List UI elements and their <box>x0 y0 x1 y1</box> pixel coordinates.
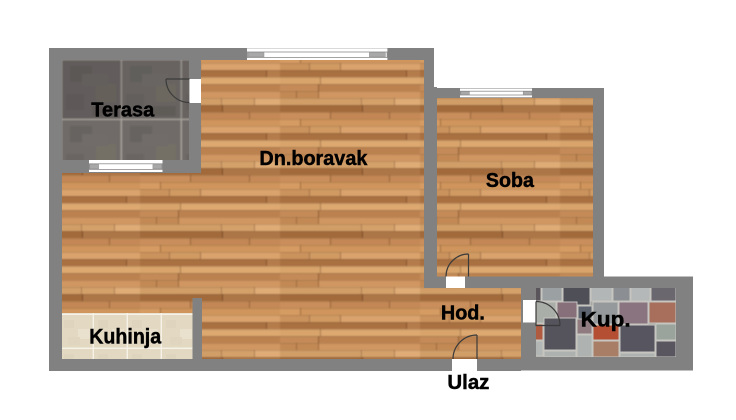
svg-text:Ulaz: Ulaz <box>447 372 489 394</box>
svg-text:Soba: Soba <box>486 170 535 192</box>
svg-text:Dn.boravak: Dn.boravak <box>259 148 368 170</box>
svg-text:Hod.: Hod. <box>441 303 485 325</box>
svg-text:Kuhinja: Kuhinja <box>89 326 161 349</box>
svg-text:Terasa: Terasa <box>91 99 155 121</box>
svg-text:Kup.: Kup. <box>581 309 631 332</box>
